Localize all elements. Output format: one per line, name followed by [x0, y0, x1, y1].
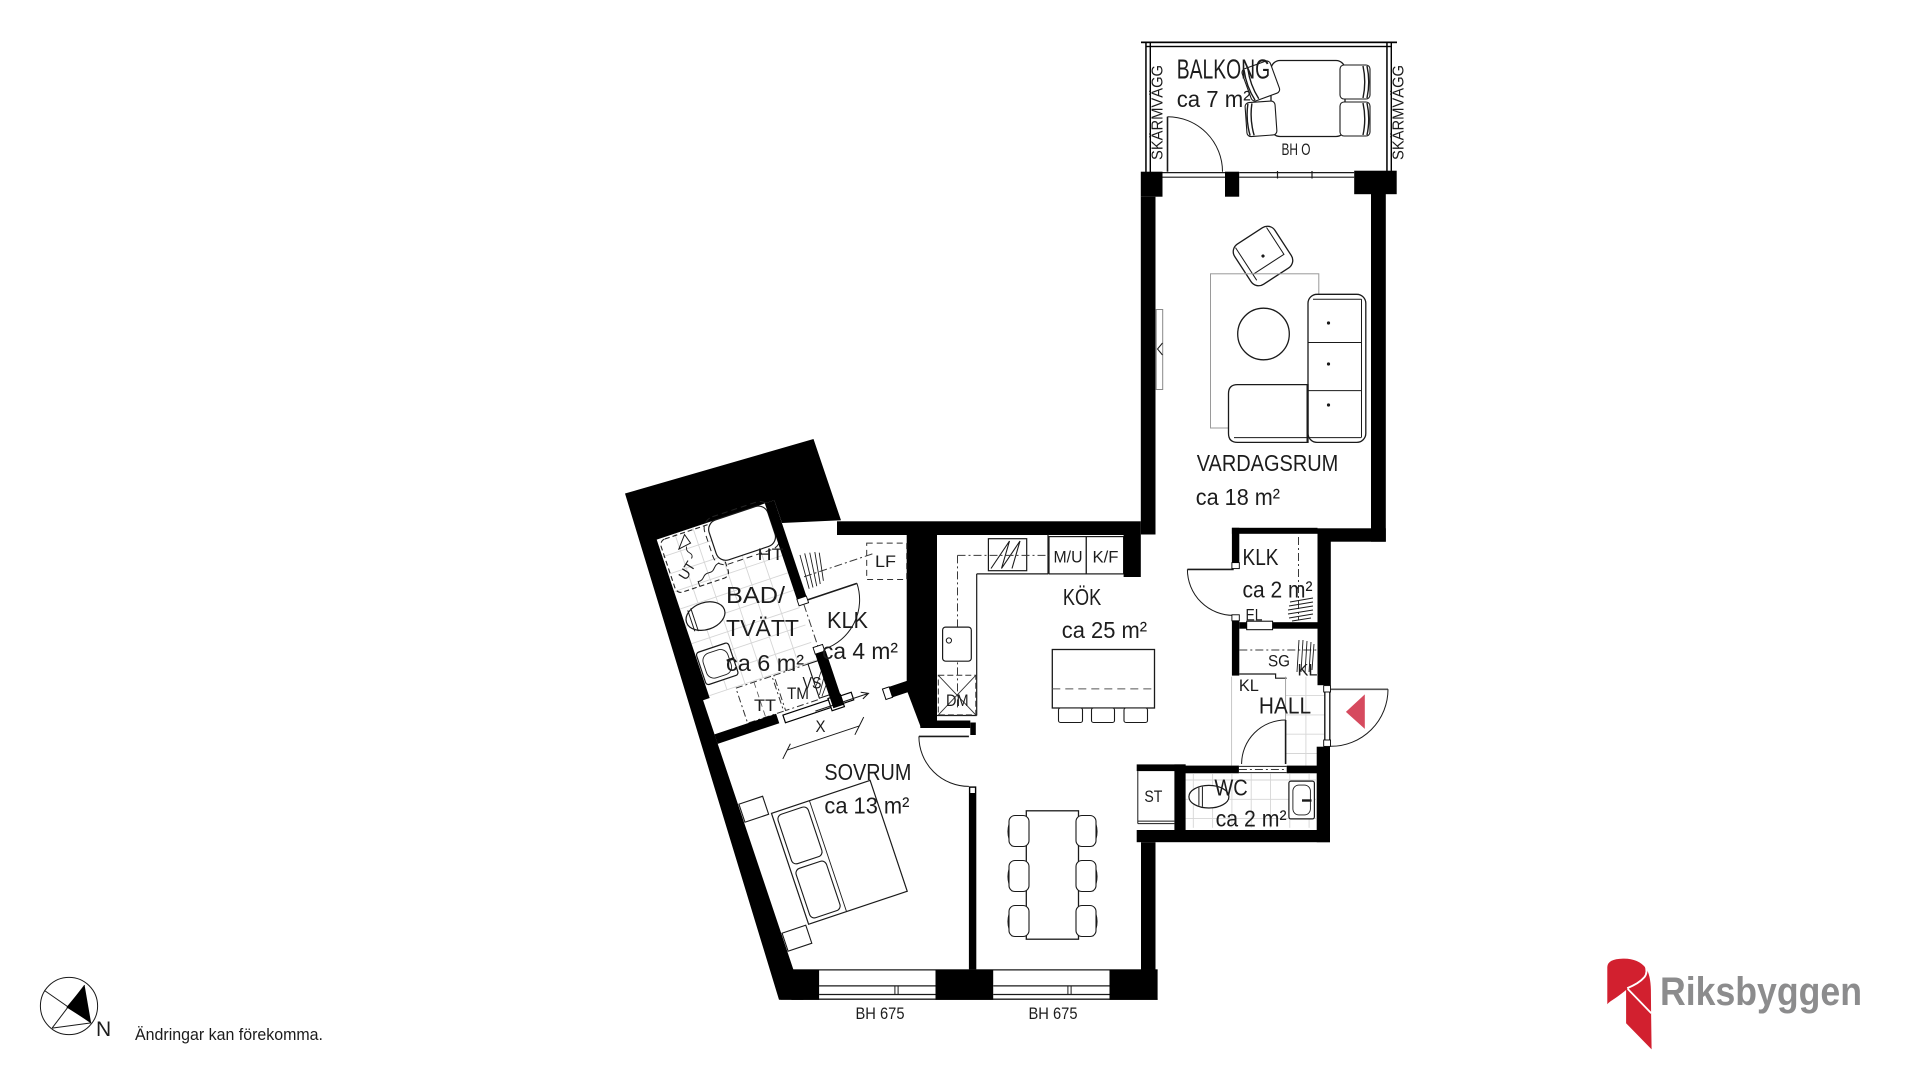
- svg-text:ca 2 m²: ca 2 m²: [1243, 577, 1313, 603]
- svg-text:KÖK: KÖK: [1063, 584, 1102, 610]
- svg-text:ca 4 m²: ca 4 m²: [822, 638, 898, 664]
- svg-text:HT: HT: [758, 545, 784, 564]
- svg-text:BALKONG: BALKONG: [1177, 54, 1271, 85]
- svg-text:KLK: KLK: [827, 607, 868, 633]
- svg-text:K/F: K/F: [1093, 548, 1119, 567]
- svg-text:WC: WC: [1214, 775, 1247, 801]
- svg-text:ca 13 m²: ca 13 m²: [824, 792, 909, 818]
- svg-text:SG: SG: [1268, 652, 1290, 671]
- svg-text:VARDAGSRUM: VARDAGSRUM: [1197, 450, 1339, 476]
- svg-text:KL: KL: [1298, 661, 1318, 680]
- svg-text:KL: KL: [1239, 676, 1259, 695]
- svg-text:ca 25 m²: ca 25 m²: [1062, 617, 1147, 643]
- svg-text:BAD/: BAD/: [726, 582, 785, 608]
- svg-text:SKÄRMVÄGG: SKÄRMVÄGG: [1391, 65, 1408, 160]
- svg-text:ca 7 m²: ca 7 m²: [1177, 86, 1251, 112]
- svg-text:DM: DM: [946, 691, 969, 710]
- svg-text:BH 675: BH 675: [1029, 1004, 1078, 1023]
- svg-text:TVÄTT: TVÄTT: [726, 615, 799, 641]
- svg-text:Ändringar kan förekomma.: Ändringar kan förekomma.: [135, 1025, 323, 1044]
- svg-text:ca 6 m²: ca 6 m²: [726, 650, 804, 676]
- svg-text:ST: ST: [1144, 787, 1162, 806]
- svg-text:X: X: [816, 717, 826, 736]
- svg-text:SOVRUM: SOVRUM: [824, 759, 911, 785]
- svg-text:EL: EL: [1246, 606, 1263, 625]
- svg-text:Riksbyggen: Riksbyggen: [1660, 970, 1862, 1014]
- svg-text:TT: TT: [754, 696, 776, 715]
- svg-text:SKÄRMVÄGG: SKÄRMVÄGG: [1150, 65, 1167, 160]
- svg-text:M/U: M/U: [1054, 548, 1083, 567]
- svg-text:BH 675: BH 675: [856, 1004, 905, 1023]
- svg-text:HALL: HALL: [1259, 692, 1311, 718]
- svg-text:LF: LF: [875, 552, 896, 571]
- svg-text:N: N: [96, 1018, 111, 1041]
- svg-text:ca 18 m²: ca 18 m²: [1196, 484, 1280, 510]
- svg-text:ca 2 m²: ca 2 m²: [1216, 806, 1287, 832]
- svg-text:BH O: BH O: [1282, 140, 1311, 159]
- svg-text:VS: VS: [803, 674, 822, 693]
- svg-text:KLK: KLK: [1243, 544, 1279, 570]
